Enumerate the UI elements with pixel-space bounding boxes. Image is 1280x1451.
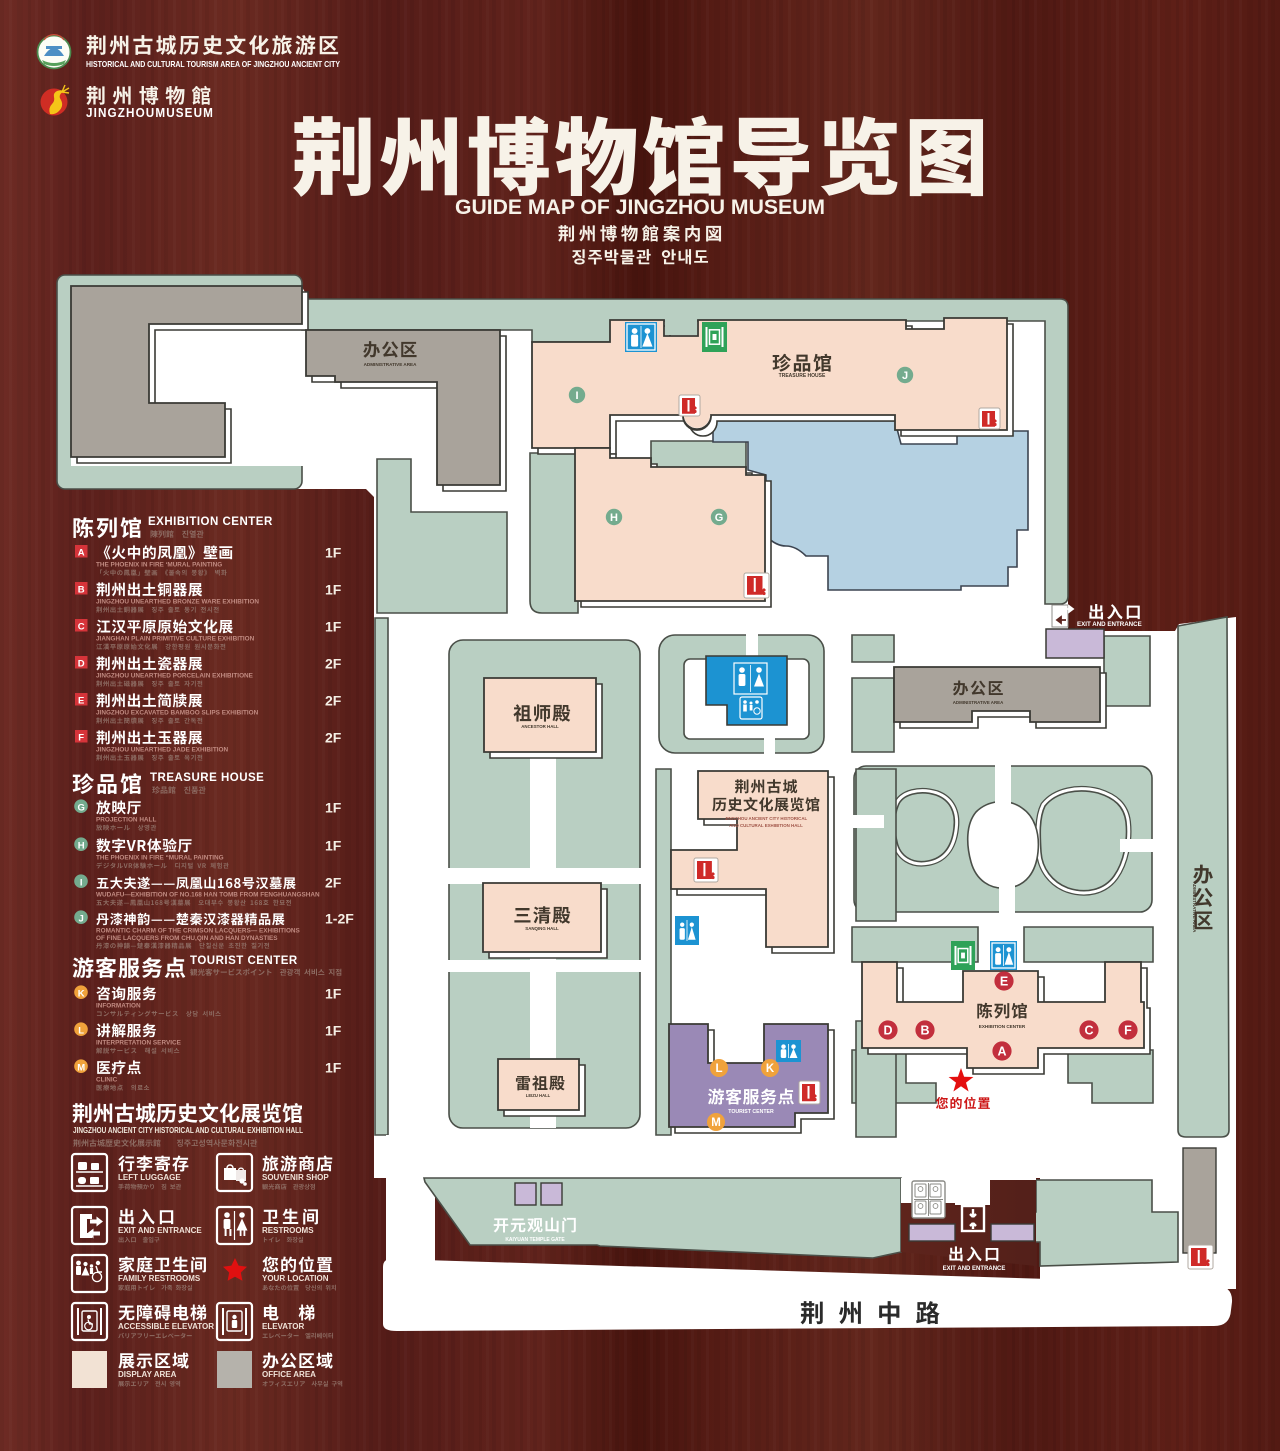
- svg-text:KAIYUAN TEMPLE GATE: KAIYUAN TEMPLE GATE: [505, 1237, 565, 1243]
- svg-text:L: L: [78, 1026, 84, 1037]
- svg-text:JINGZHOU UNEARTHED BRONZE WARE: JINGZHOU UNEARTHED BRONZE WARE EXHIBITIO…: [96, 599, 259, 606]
- svg-text:WUDAFU—EXHIBITION OF NO.168 HA: WUDAFU—EXHIBITION OF NO.168 HAN TOMB FRO…: [96, 892, 320, 899]
- svg-text:D: D: [78, 659, 85, 670]
- svg-text:C: C: [78, 622, 85, 633]
- svg-text:AND CULTURAL EXHIBITION HALL: AND CULTURAL EXHIBITION HALL: [729, 823, 803, 828]
- svg-text:I: I: [575, 390, 578, 402]
- svg-text:1F: 1F: [325, 800, 342, 816]
- svg-text:A: A: [997, 1044, 1006, 1058]
- svg-text:1F: 1F: [325, 582, 342, 598]
- svg-text:INTERPRETATION SERVICE: INTERPRETATION SERVICE: [96, 1040, 182, 1047]
- svg-text:JINGZHOUMUSEUM: JINGZHOUMUSEUM: [86, 106, 214, 120]
- svg-text:EXIT AND ENTRANCE: EXIT AND ENTRANCE: [1077, 621, 1142, 628]
- svg-text:RESTROOMS: RESTROOMS: [262, 1226, 314, 1235]
- svg-text:JINGZHOU ANCIENT CITY HISTORIC: JINGZHOU ANCIENT CITY HISTORICAL AND CUL…: [73, 1126, 303, 1135]
- svg-text:CLINIC: CLINIC: [96, 1077, 118, 1084]
- svg-text:M: M: [711, 1117, 721, 1129]
- svg-text:1F: 1F: [325, 545, 342, 561]
- svg-text:2F: 2F: [325, 656, 342, 672]
- svg-text:J: J: [79, 914, 84, 925]
- svg-text:M: M: [77, 1063, 85, 1074]
- svg-text:1F: 1F: [325, 1060, 342, 1076]
- svg-text:ACCESSIBLE ELEVATOR: ACCESSIBLE ELEVATOR: [118, 1322, 214, 1331]
- svg-text:JINGZHOU UNEARTHED PORCELAIN E: JINGZHOU UNEARTHED PORCELAIN EXHIBITIONE: [96, 673, 254, 680]
- svg-text:E: E: [78, 696, 84, 707]
- svg-text:F: F: [1124, 1023, 1132, 1037]
- svg-text:J: J: [902, 370, 908, 382]
- svg-text:ANCESTOR HALL: ANCESTOR HALL: [521, 724, 559, 729]
- svg-text:2F: 2F: [325, 875, 342, 891]
- svg-text:SOUVENIR SHOP: SOUVENIR SHOP: [262, 1173, 329, 1182]
- svg-text:HISTORICAL AND CULTURAL TOURIS: HISTORICAL AND CULTURAL TOURISM AREA OF …: [86, 59, 340, 69]
- svg-text:TREASURE HOUSE: TREASURE HOUSE: [779, 373, 826, 379]
- svg-text:1-2F: 1-2F: [325, 911, 354, 927]
- svg-text:OF FINE LACQUERS FROM CHU,QIN: OF FINE LACQUERS FROM CHU,QIN AND HAN DY…: [96, 935, 278, 942]
- svg-text:JINGZHOU UNEARTHED JADE EXHIBI: JINGZHOU UNEARTHED JADE EXHIBITION: [96, 747, 228, 754]
- svg-text:B: B: [920, 1023, 929, 1037]
- svg-text:H: H: [78, 841, 85, 852]
- svg-text:2F: 2F: [325, 730, 342, 746]
- svg-text:H: H: [610, 512, 618, 524]
- svg-text:K: K: [766, 1063, 775, 1075]
- svg-text:D: D: [883, 1023, 892, 1037]
- svg-text:ADMINISTRATIVE AREA: ADMINISTRATIVE AREA: [364, 362, 418, 367]
- svg-text:C: C: [1084, 1023, 1093, 1037]
- svg-text:DISPLAY AREA: DISPLAY AREA: [118, 1370, 177, 1379]
- svg-text:1F: 1F: [325, 838, 342, 854]
- svg-text:ADMINISTRATIVE AREA: ADMINISTRATIVE AREA: [953, 700, 1004, 705]
- svg-text:YOUR LOCATION: YOUR LOCATION: [262, 1274, 329, 1283]
- svg-text:G: G: [78, 803, 85, 814]
- svg-text:FAMILY RESTROOMS: FAMILY RESTROOMS: [118, 1274, 201, 1283]
- svg-text:TOURIST CENTER: TOURIST CENTER: [728, 1109, 774, 1115]
- svg-text:1F: 1F: [325, 986, 342, 1002]
- svg-text:GUIDE MAP OF JINGZHOU MUSEUM: GUIDE MAP OF JINGZHOU MUSEUM: [455, 195, 825, 219]
- svg-text:I: I: [80, 878, 83, 889]
- svg-text:JIANGHAN PLAIN PRIMITIVE CULTU: JIANGHAN PLAIN PRIMITIVE CULTURE EXHIBIT…: [96, 636, 255, 643]
- svg-text:THE PHOENIX IN FIRE “MURAL PAI: THE PHOENIX IN FIRE “MURAL PAINTING: [96, 855, 224, 862]
- svg-text:OFFICE AREA: OFFICE AREA: [262, 1370, 316, 1379]
- svg-text:EXIT AND ENTRANCE: EXIT AND ENTRANCE: [943, 1266, 1006, 1272]
- svg-text:PROJECTION HALL: PROJECTION HALL: [96, 817, 156, 824]
- svg-text:ROMANTIC CHARM OF THE CRIMSON: ROMANTIC CHARM OF THE CRIMSON LACQUERS— …: [96, 928, 301, 935]
- svg-text:A: A: [78, 548, 85, 559]
- svg-text:ELEVATOR: ELEVATOR: [262, 1322, 304, 1331]
- svg-text:EXHIBITION CENTER: EXHIBITION CENTER: [979, 1024, 1026, 1029]
- svg-text:K: K: [78, 989, 85, 1000]
- svg-text:JINGZHOU ANCIENT CITY HISTORIC: JINGZHOU ANCIENT CITY HISTORICAL: [725, 816, 808, 821]
- svg-text:SANQING HALL: SANQING HALL: [525, 926, 559, 931]
- svg-text:THE PHOENIX IN FIRE ‘MURAL PAI: THE PHOENIX IN FIRE ‘MURAL PAINTING: [96, 562, 222, 569]
- svg-text:TREASURE HOUSE: TREASURE HOUSE: [150, 772, 264, 784]
- svg-text:G: G: [715, 512, 724, 524]
- svg-text:B: B: [78, 585, 85, 596]
- svg-text:INFORMATION: INFORMATION: [96, 1003, 141, 1010]
- svg-text:LEIZU HALL: LEIZU HALL: [526, 1093, 551, 1098]
- svg-text:L: L: [715, 1063, 722, 1075]
- svg-text:EXIT AND ENTRANCE: EXIT AND ENTRANCE: [118, 1226, 202, 1235]
- svg-text:JINGZHOU EXCAVATED BAMBOO SLIP: JINGZHOU EXCAVATED BAMBOO SLIPS EXHIBITI…: [96, 710, 259, 717]
- svg-text:1F: 1F: [325, 619, 342, 635]
- svg-text:E: E: [1000, 974, 1008, 988]
- svg-text:TOURIST CENTER: TOURIST CENTER: [190, 955, 298, 967]
- svg-text:EXHIBITION CENTER: EXHIBITION CENTER: [148, 516, 273, 528]
- svg-text:ADMINISTRATIVE AREA: ADMINISTRATIVE AREA: [1192, 882, 1197, 933]
- svg-text:1F: 1F: [325, 1023, 342, 1039]
- svg-text:2F: 2F: [325, 693, 342, 709]
- svg-text:F: F: [78, 733, 84, 744]
- svg-text:LEFT LUGGAGE: LEFT LUGGAGE: [118, 1173, 181, 1182]
